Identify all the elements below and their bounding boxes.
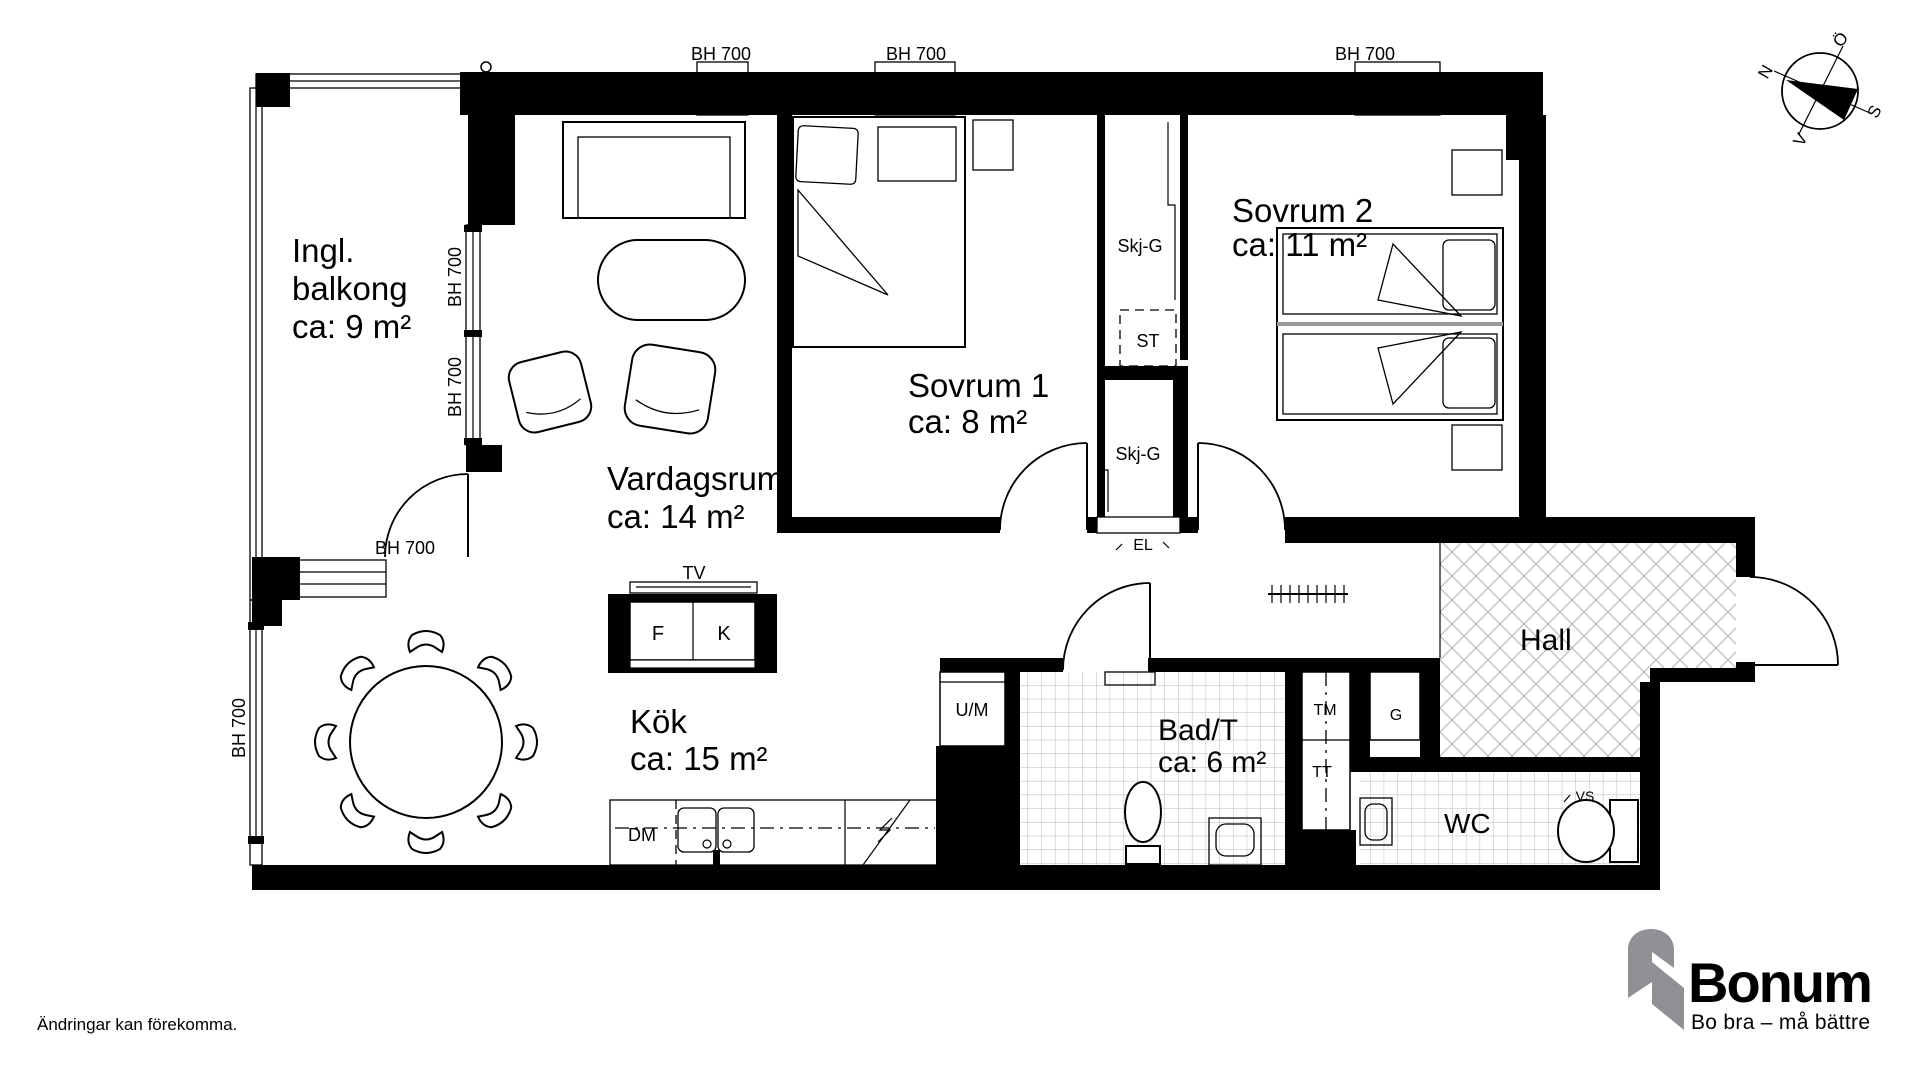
cabinet-g — [1370, 672, 1420, 740]
sill-label-top-2: BH 700 — [886, 44, 946, 64]
living-label: Vardagsrum — [607, 460, 784, 497]
kitchen-area: ca: 15 m² — [630, 740, 768, 777]
sill-label-top-1: BH 700 — [691, 44, 751, 64]
vs-label: VS — [1576, 788, 1595, 804]
balcony-label-line1: Ingl. — [292, 232, 354, 269]
balcony-label-line2: balkong — [292, 270, 408, 307]
sill-label-balcony-door: BH 700 — [375, 538, 435, 558]
living-area: ca: 14 m² — [607, 498, 745, 535]
sill-label-balcony-window-1: BH 700 — [445, 247, 465, 307]
chair — [335, 793, 375, 833]
freezer-label: K — [717, 623, 731, 645]
bonum-logo-mark-icon — [1628, 929, 1684, 1030]
chair — [335, 651, 375, 691]
skjg-upper-label: Skj-G — [1118, 236, 1163, 256]
compass-north: N — [1754, 62, 1777, 82]
hall-floor-tiles — [1440, 543, 1736, 757]
armchair-1 — [505, 348, 594, 436]
tm-label: TM — [1313, 702, 1336, 719]
toilet-bath — [1125, 782, 1161, 864]
bed-single — [793, 117, 965, 347]
tt-label: TT — [1312, 764, 1332, 781]
armchair-2 — [622, 342, 718, 436]
chair — [408, 631, 443, 652]
compass-east: Ö — [1829, 29, 1852, 51]
left-facade-window — [248, 600, 264, 865]
skjg-lower-label: Skj-G — [1116, 444, 1161, 464]
chair — [408, 832, 443, 853]
bedroom2-area: ca: 11 m² — [1232, 226, 1367, 263]
kitchen-label: Kök — [630, 703, 687, 740]
brand-tagline: Bo bra – må bättre — [1691, 1011, 1870, 1034]
brand-name: Bonum — [1688, 951, 1871, 1014]
chair — [477, 651, 517, 691]
kitchen-sink — [678, 808, 754, 865]
tv-label: TV — [682, 563, 705, 583]
kitchen-counter — [610, 800, 940, 865]
dishwasher-label: DM — [628, 825, 656, 845]
compass-south: S — [1864, 102, 1886, 121]
dining-table — [350, 666, 502, 818]
bedroom2-door — [1198, 443, 1285, 530]
toilet-wc — [1558, 800, 1638, 862]
entrance-door — [1750, 577, 1838, 665]
tv-bench — [630, 582, 757, 593]
coat-rack — [1268, 585, 1348, 603]
bath-label: Bad/T — [1158, 714, 1238, 747]
chair — [516, 724, 537, 759]
sofa — [563, 122, 745, 218]
sill-label-left-facade: BH 700 — [229, 698, 249, 758]
coffee-table — [598, 240, 745, 320]
hall-label: Hall — [1520, 624, 1572, 657]
chair — [477, 793, 517, 833]
wc-label: WC — [1444, 808, 1491, 839]
washing-machine-box — [1302, 672, 1350, 830]
chair — [315, 724, 336, 759]
sill-label-balcony-window-2: BH 700 — [445, 357, 465, 417]
compass-west: V — [1790, 130, 1812, 150]
bedside-table-2 — [1452, 150, 1502, 195]
sill-label-top-3: BH 700 — [1335, 44, 1395, 64]
floor-plan: N Ö S V Ingl. balkong ca: 9 m² Vardagsru… — [0, 0, 1920, 1080]
g-label: G — [1390, 707, 1402, 724]
bedside-table-1 — [973, 120, 1013, 170]
fridge-freezer-unit — [608, 594, 777, 673]
facade-column-marker — [481, 62, 491, 72]
bath-area: ca: 6 m² — [1158, 746, 1266, 779]
fridge-label: F — [652, 623, 664, 645]
balcony-area: ca: 9 m² — [292, 308, 411, 345]
st-label: ST — [1136, 331, 1159, 351]
bonum-logo: Bonum Bo bra – må bättre — [1628, 929, 1871, 1034]
disclaimer-text: Ändringar kan förekomma. — [37, 1015, 237, 1034]
bathroom-door — [1063, 583, 1150, 670]
el-label: EL — [1133, 537, 1153, 554]
bedside-table-3 — [1452, 425, 1502, 470]
bedroom2-label: Sovrum 2 — [1232, 192, 1373, 229]
compass-icon: N Ö S V — [1754, 29, 1885, 150]
um-label: U/M — [956, 700, 989, 720]
bedroom1-door — [1000, 443, 1087, 530]
bedroom1-label: Sovrum 1 — [908, 367, 1049, 404]
bedroom1-area: ca: 8 m² — [908, 403, 1027, 440]
